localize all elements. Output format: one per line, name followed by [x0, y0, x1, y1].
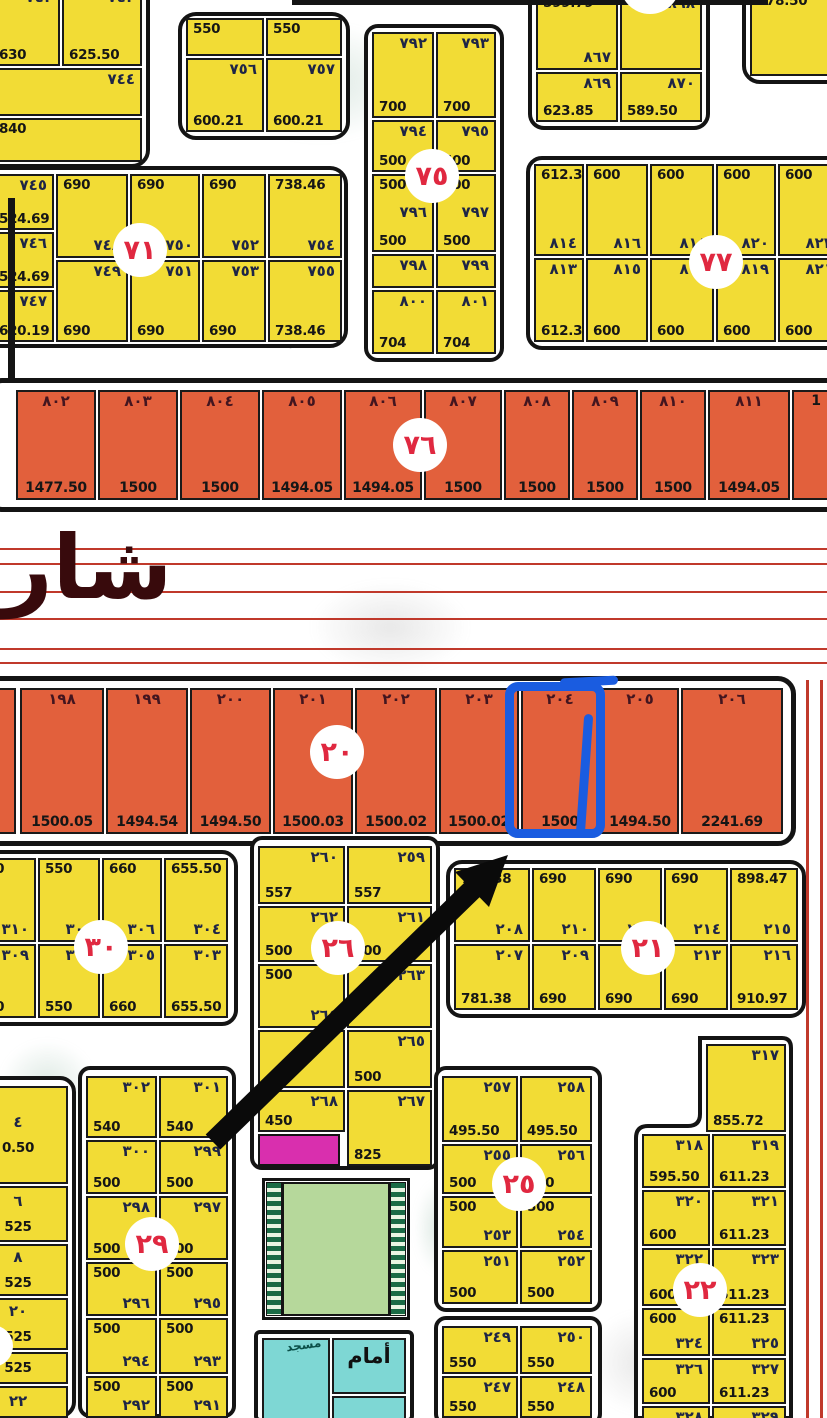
plot-area-value: 910.97 [737, 992, 787, 1006]
plot-area-value: 1494.05 [352, 481, 414, 496]
plot-area-value: 738.46 [275, 324, 325, 338]
plot-area-value: 1500.02 [448, 815, 510, 830]
plot-number: ٢٠٩ [562, 948, 589, 964]
plot-area-value: 500 [93, 1380, 120, 1394]
plot-number: ٨٦٩ [584, 76, 611, 92]
plot-area-value: 781.38 [461, 992, 511, 1006]
plot-cell-٢٠٠: ٢٠٠1494.50 [190, 688, 271, 834]
plot-area-value: 700 [443, 100, 470, 114]
plot-cell-٢٩٥: 500٢٩٥ [159, 1262, 228, 1316]
plot-area-value: 855.72 [713, 1114, 763, 1128]
plot-cell: 550 [186, 18, 264, 56]
plot-area-value: 655.50 [171, 1000, 221, 1014]
plot-number: ٨٠١ [462, 294, 489, 310]
plot-cell: 1 [792, 390, 827, 500]
plot-cell-٨٢١: ٨٢١600 [778, 258, 827, 342]
plot-area-value: 500 [449, 1200, 476, 1214]
plot-number: ٧٥٠ [166, 238, 193, 254]
plot-cell: 778.50 [750, 0, 827, 76]
plot-area-value: 600.21 [193, 114, 243, 128]
block-number-circle-٢٥: ٢٥ [492, 1157, 546, 1211]
plot-area-value: 690 [671, 992, 698, 1006]
plot-cell-٤: ٤0.50 [0, 1086, 68, 1184]
plot-cell [0, 688, 16, 834]
plot-number: ٢٩١ [194, 1398, 221, 1414]
plot-number: ٨٢٠ [742, 236, 769, 252]
plot-area-value: 660 [0, 1000, 4, 1014]
plot-cell-٨٠٢: ٨٠٢1477.50 [16, 390, 96, 500]
plot-cell-٧٥٦: ٧٥٦600.21 [186, 58, 264, 132]
plot-area-value: 595.50 [649, 1170, 699, 1184]
plot-cell-٨٠٥: ٨٠٥1494.05 [262, 390, 342, 500]
plot-number: ٢٤٩ [484, 1330, 511, 1346]
plot-number: ٢٩٦ [123, 1296, 150, 1312]
plot-number: ٧٩٣ [462, 36, 489, 52]
plot-area-value: 825 [354, 1148, 381, 1162]
plot-area-value: 525 [4, 1276, 31, 1290]
plot-area-value: 500 [379, 234, 406, 248]
plot-area-value: 500 [166, 1266, 193, 1280]
plot-cell-٢١٠: 690٢١٠ [532, 868, 596, 942]
plot-cell-٢٠٧: ٢٠٧781.38 [454, 944, 530, 1010]
plot-area-value: 611.23 [719, 1228, 769, 1242]
park-serrated-border [390, 1182, 406, 1316]
plot-cell-٧٥٧: ٧٥٧600.21 [266, 58, 342, 132]
plot-number: ٣١٨ [676, 1138, 703, 1154]
plot-cell-٢٩٣: 500٢٩٣ [159, 1318, 228, 1374]
plot-area-value: 550 [193, 22, 220, 36]
plot-number: ٢٩٣ [194, 1354, 221, 1370]
plot-number: ٢٤٨ [558, 1380, 585, 1396]
plot-area-value: 655.50 [171, 862, 221, 876]
plot-cell-٢١٦: ٢١٦910.97 [730, 944, 798, 1010]
plot-area-value: 550 [449, 1400, 476, 1414]
plot-cell-٨١٣: ٨١٣612.34 [534, 258, 584, 342]
map-rect [292, 0, 768, 5]
plot-number: ٣٢٠ [676, 1194, 703, 1210]
plot-area-value: 525 [4, 1361, 31, 1375]
plot-cell-٧٩٩: ٧٩٩ [436, 254, 496, 288]
plot-area-value: 600 [657, 168, 684, 182]
plot-number: ٣٠٦ [128, 922, 155, 938]
block-number-circle-٢٢: ٢٢ [673, 1263, 727, 1317]
plot-area-value: 600 [593, 324, 620, 338]
plot-cell-٢٠٨: 781.38٢٠٨ [454, 868, 530, 942]
plot-number: ٢١٠ [562, 922, 589, 938]
plot-number: ٢٠٢ [382, 692, 409, 708]
plot-area-value: 540 [166, 1120, 193, 1134]
plot-area-value: 600 [649, 1386, 676, 1400]
plot-area-value: 704 [379, 336, 406, 350]
plot-cell-٨٠٣: ٨٠٣1500 [98, 390, 178, 500]
plot-cell [332, 1396, 406, 1418]
plot-cell-٢٩٩: ٢٩٩500 [159, 1140, 228, 1194]
plot-area-value: 630 [0, 48, 26, 62]
plot-number: ٣٢٥ [752, 1336, 779, 1352]
plot-cell-٣٠٤: 655.50٣٠٤ [164, 858, 228, 942]
plot-number: ٢١٦ [764, 948, 791, 964]
plot-cell-٣٢٥: 611.23٣٢٥ [712, 1308, 786, 1356]
plot-area-value: 540 [93, 1120, 120, 1134]
plot-area-value: 690 [605, 872, 632, 886]
plot-cell-٣٢٦: ٣٢٦600 [642, 1358, 710, 1404]
plot-cell-٢٩٤: 500٢٩٤ [86, 1318, 157, 1374]
plot-cell-٣٠٣: ٣٠٣655.50 [164, 944, 228, 1018]
plot-area-value: 690 [671, 872, 698, 886]
plot-area-value: 690 [605, 992, 632, 1006]
plot-cell-٣٢٧: ٣٢٧611.23 [712, 1358, 786, 1404]
plot-area-value: 1500 [444, 481, 482, 496]
plot-number: ٨٧٠ [668, 76, 695, 92]
plot-area-value: 550 [273, 22, 300, 36]
plot-area-value: 557 [354, 886, 381, 900]
plot-cell-٦: ٦525 [0, 1186, 68, 1242]
plot-cell-٧٤٤: ٧٤٤ [0, 68, 142, 116]
plot-number: ٣٢٩ [752, 1410, 779, 1418]
plot-number: ٣٠٩ [2, 948, 29, 964]
plot-number: ٨١٠ [659, 394, 686, 410]
plot-cell-٧٥٢: 690٧٥٢ [202, 174, 266, 258]
plot-number: ٢١٤ [694, 922, 721, 938]
block-number-circle-٧٦: ٧٦ [393, 418, 447, 472]
plot-area-value: 600 [593, 168, 620, 182]
plot-cell-١٩٨: ١٩٨1500.05 [20, 688, 104, 834]
plot-number: ٧٩٧ [462, 205, 489, 221]
plot-number: ٧٤٤ [108, 72, 135, 88]
plot-area-value: 1500 [201, 481, 239, 496]
plot-cell-٧٥٣: ٧٥٣690 [202, 260, 266, 342]
plot-number: ٢١٥ [764, 922, 791, 938]
plot-number: ٢٦١ [398, 910, 425, 926]
plot-cell-٨٠٨: ٨٠٨1500 [504, 390, 570, 500]
plot-area-value: 1494.54 [116, 815, 178, 830]
block-number-circle-٢٩: ٢٩ [125, 1217, 179, 1271]
plot-area-value: 500 [443, 234, 470, 248]
plot-cell-٨٠١: ٨٠١704 [436, 290, 496, 354]
plot-number: ٨٢٢ [806, 236, 827, 252]
plot-area-value: 495.50 [449, 1124, 499, 1138]
plot-number: ٢٦٣ [398, 968, 425, 984]
plot-number: ٢٥٩ [398, 850, 425, 866]
plot-number: ٢٩٢ [123, 1398, 150, 1414]
plot-cell-٧٩٣: ٧٩٣700 [436, 32, 496, 118]
plot-number: ٨٠٧ [449, 394, 476, 410]
mosque-front-label: أمام [336, 1344, 402, 1368]
plot-area-value: 525 [4, 1220, 31, 1234]
plot-area-value: 612.34 [541, 324, 584, 338]
plot-area-value: 500 [166, 1322, 193, 1336]
plot-number: ٨١٥ [614, 262, 641, 278]
plot-number: ٢٩٥ [194, 1296, 221, 1312]
plot-cell-٢٠٢: ٢٠٢1500.02 [355, 688, 437, 834]
plot-number: ٢٩٩ [194, 1144, 221, 1160]
park-serrated-border [266, 1182, 282, 1316]
plot-area-value: 500 [379, 154, 406, 168]
plot-number: ٢٦٠ [311, 850, 338, 866]
plot-number: ٣٠٠ [123, 1144, 150, 1160]
plot-number: ٣١٠ [2, 922, 29, 938]
plot-area-value: 612.34 [541, 168, 584, 182]
plot-number: ٢٥٦ [558, 1148, 585, 1164]
plot-area-value: 500 [265, 968, 292, 982]
plot-area-value: 600 [723, 168, 750, 182]
plot-area-value: 550 [45, 1000, 72, 1014]
plot-number: ٢٦٨ [311, 1094, 338, 1110]
plot-area-value: 500 [166, 1380, 193, 1394]
plot-area-value: 500 [265, 944, 292, 958]
plot-area-value: 500 [379, 178, 406, 192]
plot-cell-٣٠٢: ٣٠٢540 [86, 1076, 157, 1138]
plot-area-value: 660 [0, 862, 4, 876]
plot-area-value: 600 [657, 324, 684, 338]
plot-cell-٢٩٢: 500٢٩٢ [86, 1376, 157, 1418]
plot-number: ٣٢٣ [752, 1252, 779, 1268]
plot-cell [258, 1030, 345, 1088]
plot-area-value: 450 [265, 1114, 292, 1128]
plot-number: ٧٤٢ [26, 0, 53, 6]
plot-area-value: 495.50 [527, 1124, 577, 1138]
plot-number: ٧٥٢ [232, 238, 259, 254]
street-red-line [0, 662, 827, 664]
plot-number: ٨١٣ [550, 262, 577, 278]
plot-cell-٨١٠: ٨١٠1500 [640, 390, 706, 500]
plot-number: ٢٥٧ [484, 1080, 511, 1096]
plot-area-value: 611.23 [719, 1312, 769, 1326]
plot-cell-٢٩١: 500٢٩١ [159, 1376, 228, 1418]
plot-area-value: 500 [93, 1266, 120, 1280]
plot-area-value: 500 [449, 1176, 476, 1190]
plot-number: ٣٢٤ [676, 1336, 703, 1352]
plot-cell-٨٢٢: 600٨٢٢ [778, 164, 827, 256]
plot-cell-٨٦٩: ٨٦٩623.85 [536, 72, 618, 122]
map-rect [282, 1182, 390, 1316]
plot-number: ٧٤٩ [94, 264, 121, 280]
plot-cell-٢١٤: 690٢١٤ [664, 868, 728, 942]
plot-cell: 840 [0, 118, 142, 162]
plot-number: ٢٢ [9, 1394, 27, 1410]
plot-number: ٨١١ [735, 394, 762, 410]
plot-cell-٨١٥: ٨١٥600 [586, 258, 648, 342]
plot-area-value: 690 [137, 178, 164, 192]
plot-area-value: 550 [45, 862, 72, 876]
plot-number: ٣٠٣ [194, 948, 221, 964]
plot-cell: 550 [266, 18, 342, 56]
plot-area-value: 500 [449, 1286, 476, 1300]
plot-area-value: 690 [209, 324, 236, 338]
plot-number: ٣٠٥ [128, 948, 155, 964]
plot-area-value: 660 [109, 1000, 136, 1014]
plot-number: ٧٥٤ [308, 238, 335, 254]
block-number-circle-٢٦: ٢٦ [311, 921, 365, 975]
plot-area-value: 1500.02 [365, 815, 427, 830]
plot-area-value: 738.46 [275, 178, 325, 192]
plot-number: ٣١٧ [752, 1048, 779, 1064]
plot-number: ٢٠٧ [496, 948, 523, 964]
plot-number: ٨٠٥ [288, 394, 315, 410]
plot-area-value: 1500 [654, 481, 692, 496]
plot-cell-٨: ٨525 [0, 1244, 68, 1296]
plot-area-value: 700 [379, 100, 406, 114]
plot-area-value: 690 [539, 872, 566, 886]
plot-area-value: 1494.05 [718, 481, 780, 496]
plot-area-value: 1477.50 [25, 481, 87, 496]
plot-cell: 525 [0, 1352, 68, 1384]
plot-number: ٣٠١ [194, 1080, 221, 1096]
plot-area-value: 500 [527, 1286, 554, 1300]
plot-area-value: 589.50 [627, 104, 677, 118]
plot-area-value: 623.85 [543, 104, 593, 118]
street-red-line-vertical [806, 680, 809, 1418]
plot-area-value: 690 [63, 178, 90, 192]
plot-cell-٢٦٥: ٢٦٥500 [347, 1030, 432, 1088]
plot-area-value: 1 [811, 394, 820, 409]
plot-cell-٣١٨: ٣١٨595.50 [642, 1134, 710, 1188]
plot-cell-٢٦٣: ٢٦٣ [347, 964, 432, 1028]
plot-cell-٣٢٨: ٣٢٨ [642, 1406, 710, 1418]
plot-area-value: 690 [539, 992, 566, 1006]
street-name: شار [2, 524, 172, 612]
plot-number: ٧٥٥ [308, 264, 335, 280]
plot-number: ٢٠٥ [626, 692, 653, 708]
plot-cell-٢٤٧: ٢٤٧550 [442, 1376, 518, 1418]
plot-area-value: 1494.05 [271, 481, 333, 496]
plot-area-value: 600.21 [273, 114, 323, 128]
plot-number: ٢٥١ [484, 1254, 511, 1270]
plot-number: ٣٢١ [752, 1194, 779, 1210]
plot-area-value: 600 [649, 1228, 676, 1242]
plot-area-value: 600 [723, 324, 750, 338]
plot-number: ٢٠١ [299, 692, 326, 708]
plot-cell-٨٧٠: ٨٧٠589.50 [620, 72, 702, 122]
plot-area-value: 1500.03 [282, 815, 344, 830]
plot-cell-٣٠٠: ٣٠٠500 [86, 1140, 157, 1194]
plot-cell-٨٠٤: ٨٠٤1500 [180, 390, 260, 500]
plot-number: ٢٠٦ [718, 692, 745, 708]
plot-area-value: 550 [449, 1356, 476, 1370]
plot-number: ٢٤٧ [484, 1380, 511, 1396]
plot-cell-٧٩٢: ٧٩٢700 [372, 32, 434, 118]
plot-number: ٧٤٥ [20, 178, 47, 194]
plot-cell-٧٤٣: ٧٤٣625.50 [62, 0, 142, 66]
plot-number: ٢٠٨ [496, 922, 523, 938]
plot-number: ٧٩٦ [400, 205, 427, 221]
plot-number: ٢٥٤ [558, 1228, 585, 1244]
plot-cell-٣١٠: 660٣١٠ [0, 858, 36, 942]
plot-number: ٢٥٣ [484, 1228, 511, 1244]
plot-cell-٨١١: ٨١١1494.05 [708, 390, 790, 500]
plot-number: ٨٦٧ [584, 50, 611, 66]
plot-number: ٨١٦ [614, 236, 641, 252]
plot-cell-٣١٧: ٣١٧855.72 [706, 1044, 786, 1132]
plot-area-value: 600 [785, 324, 812, 338]
plot-number: ٦ [13, 1194, 22, 1210]
plot-area-value: 550 [527, 1400, 554, 1414]
plot-number: ٢٥٠ [558, 1330, 585, 1346]
plot-number: ٧٩٩ [462, 258, 489, 274]
plot-cell-٣٠٩: ٣٠٩660 [0, 944, 36, 1018]
plot-number: ٨٠٤ [206, 394, 233, 410]
plot-number: ٣٢٧ [752, 1362, 779, 1378]
plot-number: ٢٩٨ [123, 1200, 150, 1216]
plot-number: ٣٠٤ [194, 922, 221, 938]
plot-area-value: 500 [93, 1242, 120, 1256]
map-rect [258, 1134, 340, 1166]
plot-area-value: 1500 [119, 481, 157, 496]
plot-area-value: 840 [0, 122, 26, 136]
plot-cell-٣٢١: ٣٢١611.23 [712, 1190, 786, 1246]
plot-number: ٨ [13, 1250, 22, 1266]
plot-number: ٣٠٢ [123, 1080, 150, 1096]
plot-cell-٢٥٢: ٢٥٢500 [520, 1250, 592, 1304]
plot-cell-٢٤٩: ٢٤٩550 [442, 1326, 518, 1374]
plot-cell-٧٥٥: ٧٥٥738.46 [268, 260, 342, 342]
plot-area-value: 1500 [518, 481, 556, 496]
plot-cell-٣٢٩: ٣٢٩ [712, 1406, 786, 1418]
street-red-line [0, 648, 827, 650]
plot-cell-٢٦٨: ٢٦٨450 [258, 1090, 345, 1132]
plot-number: ٧٥٧ [308, 62, 335, 78]
plot-cell-٢٥١: ٢٥١500 [442, 1250, 518, 1304]
plot-area-value: 690 [137, 324, 164, 338]
plot-area-value: 500 [93, 1322, 120, 1336]
plot-cell-٢٤٨: ٢٤٨550 [520, 1376, 592, 1418]
plot-number: ٧٥١ [166, 264, 193, 280]
plot-number: ٨١٩ [742, 262, 769, 278]
plot-number: ٨١٤ [550, 236, 577, 252]
block-number-circle-٢١: ٢١ [621, 921, 675, 975]
plot-number: ٧٥٦ [230, 62, 257, 78]
plot-area-value: 1494.50 [200, 815, 262, 830]
plot-number: ٢١٣ [694, 948, 721, 964]
plot-area-value: 500 [166, 1176, 193, 1190]
plot-number: ٨٢١ [806, 262, 827, 278]
plot-cell-٧٤٢: ٧٤٢630 [0, 0, 60, 66]
plot-area-value: 500 [93, 1176, 120, 1190]
plot-cell-٢٦٠: ٢٦٠557 [258, 846, 345, 904]
plot-area-value: 660 [109, 862, 136, 876]
plot-cell-٢١٥: 898.47٢١٥ [730, 868, 798, 942]
plot-number: ٨٠٩ [591, 394, 618, 410]
plot-number: ٧٩٤ [400, 124, 427, 140]
plot-cell-٢٥٩: ٢٥٩557 [347, 846, 432, 904]
plot-number: ٢٥٢ [558, 1254, 585, 1270]
plot-number: ٢٦٧ [398, 1094, 425, 1110]
plot-number: ٢٩٧ [194, 1200, 221, 1216]
plot-cell-٢٦٧: ٢٦٧825 [347, 1090, 432, 1166]
plot-number: ٨٠٨ [523, 394, 550, 410]
plot-cell-٢٢: ٢٢ [0, 1386, 68, 1418]
block-number-circle-٧٥: ٧٥ [405, 149, 459, 203]
plot-area-value: 600 [649, 1312, 676, 1326]
plot-number: ٧٩٨ [400, 258, 427, 274]
plot-number: ٧٥٣ [232, 264, 259, 280]
plot-number: ٧٤٣ [108, 0, 135, 6]
plot-number: ٧٩٢ [400, 36, 427, 52]
plot-area-value: 625.50 [69, 48, 119, 62]
plot-area-value: 600 [785, 168, 812, 182]
plot-cell-٨٦٧: 599.79٨٦٧ [536, 0, 618, 70]
plot-area-value: 690 [209, 178, 236, 192]
plot-cell-٨٠٠: ٨٠٠704 [372, 290, 434, 354]
plot-number: ٨٠٣ [124, 394, 151, 410]
plot-area-value: 550 [527, 1356, 554, 1370]
plot-area-value: 0.50 [2, 1141, 34, 1155]
street-red-line-vertical [820, 680, 823, 1418]
plot-cell-٧٩٨: ٧٩٨ [372, 254, 434, 288]
plot-number: ١٩٩ [133, 692, 160, 708]
plot-area-value: 2241.69 [701, 815, 763, 830]
plot-number: ٢٦٥ [398, 1034, 425, 1050]
